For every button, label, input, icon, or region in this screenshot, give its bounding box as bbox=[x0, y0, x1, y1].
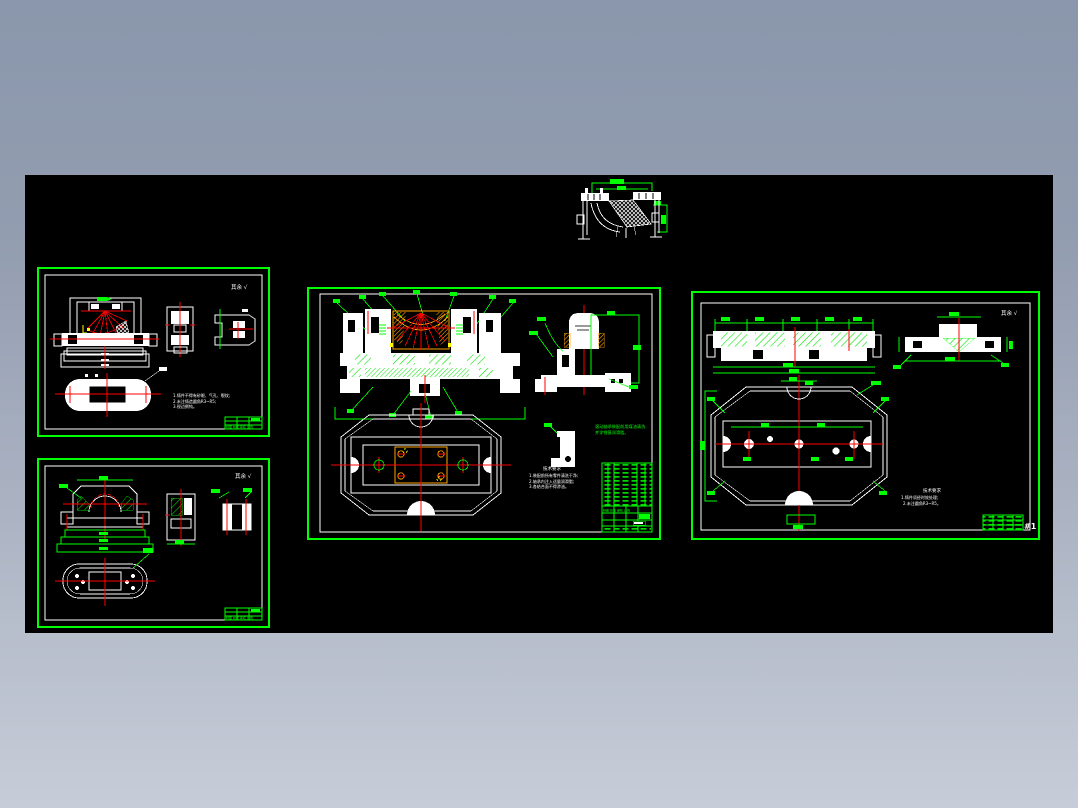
sheet-a-technical-notes: 1.铸件不得有砂眼、气孔、裂纹; 2.未注铸造圆角R3~R5; 3.锐边倒钝。 bbox=[173, 392, 230, 409]
svg-text:并涂锂基润滑脂。: 并涂锂基润滑脂。 bbox=[595, 429, 629, 436]
sheet-b-main-view bbox=[57, 476, 153, 552]
title-block-mark: #1 bbox=[1024, 522, 1037, 531]
surface-roughness-mark: 其余 √ bbox=[231, 283, 248, 291]
sheet-d-plan-view bbox=[700, 375, 889, 531]
svg-text:3.锐边倒钝。: 3.锐边倒钝。 bbox=[173, 403, 197, 409]
sheet-b-side-view bbox=[211, 488, 252, 535]
sheet-a-bottom-view bbox=[55, 367, 167, 417]
svg-text:技术要求: 技术要求 bbox=[923, 487, 941, 494]
sheet-c-plan-view bbox=[331, 403, 511, 531]
surface-roughness-mark: 其余 √ bbox=[1001, 309, 1018, 317]
sheet-b-section-view bbox=[165, 489, 195, 546]
surface-roughness-mark: 其余 √ bbox=[235, 472, 252, 480]
pulley-section bbox=[387, 311, 455, 350]
svg-text:制图 校核 审核 比例: 制图 校核 审核 比例 bbox=[603, 508, 630, 513]
svg-text:1.铸件须经时效处理;: 1.铸件须经时效处理; bbox=[901, 494, 938, 500]
sheet-b-bottom-view bbox=[55, 548, 155, 606]
sheet-c-detail-view bbox=[544, 423, 575, 467]
sheet-a-main-view bbox=[50, 297, 159, 369]
sheet-c-drawing: 滚动轴承装配前用煤油清洗 并涂锂基润滑脂。 技术要求 1.装配前所有零件清洗干净… bbox=[307, 287, 661, 540]
sheet-b-border bbox=[38, 459, 269, 627]
sheet-d-technical-notes: 技术要求 1.铸件须经时效处理; 2.未注圆角R3~R5。 bbox=[901, 487, 941, 506]
sheet-c-green-note: 滚动轴承装配前用煤油清洗 并涂锂基润滑脂。 bbox=[595, 423, 646, 436]
svg-text:2.未注圆角R3~R5。: 2.未注圆角R3~R5。 bbox=[903, 500, 941, 506]
sheet-d-drawing: 其余 √ bbox=[691, 291, 1040, 540]
sheet-b-drawing: 其余 √ bbox=[37, 458, 270, 628]
sheet-a-drawing: 其余 √ bbox=[37, 267, 270, 437]
sheet-d-border bbox=[692, 292, 1039, 539]
detail-part-outline bbox=[560, 175, 662, 239]
drawing-canvas: 其余 √ bbox=[25, 175, 1053, 633]
svg-text:1.装配前所有零件清洗干净;: 1.装配前所有零件清洗干净; bbox=[529, 472, 578, 478]
sheet-c-title-block: 制图 校核 审核 比例 bbox=[602, 506, 652, 532]
svg-text:滚动轴承装配前用煤油清洗: 滚动轴承装配前用煤油清洗 bbox=[595, 423, 646, 430]
sheet-d-title-block: #1 bbox=[983, 515, 1037, 531]
cad-preview-page: 其余 √ bbox=[0, 0, 1078, 808]
detail-drawing-top bbox=[560, 175, 700, 253]
sheet-a-border bbox=[38, 268, 269, 436]
sheet-a-side-view bbox=[215, 309, 255, 349]
svg-text:1.铸件不得有砂眼、气孔、裂纹;: 1.铸件不得有砂眼、气孔、裂纹; bbox=[173, 392, 230, 398]
sheet-a-title-block: 制图 校核 审核 比例 bbox=[225, 417, 262, 429]
svg-text:制图 校核 审核 比例: 制图 校核 审核 比例 bbox=[226, 424, 253, 429]
sheet-d-tpart-view bbox=[893, 312, 1013, 369]
svg-text:制图 校核 审核 比例: 制图 校核 审核 比例 bbox=[226, 615, 253, 620]
sheet-a-section-view bbox=[165, 302, 195, 357]
sheet-c-side-view bbox=[529, 305, 641, 395]
sheet-c-bom-table bbox=[602, 463, 652, 506]
sheet-b-title-block: 制图 校核 审核 比例 bbox=[225, 608, 262, 620]
sheet-c-technical-notes: 技术要求 1.装配前所有零件清洗干净; 2.轴承内注入适量润滑脂; 3.各结合面… bbox=[529, 465, 578, 489]
svg-text:技术要求: 技术要求 bbox=[543, 465, 561, 472]
sheet-c-front-view bbox=[333, 290, 525, 419]
sheet-d-plate-section-view bbox=[707, 317, 881, 373]
svg-text:3.各结合面不得渗油。: 3.各结合面不得渗油。 bbox=[529, 483, 569, 489]
